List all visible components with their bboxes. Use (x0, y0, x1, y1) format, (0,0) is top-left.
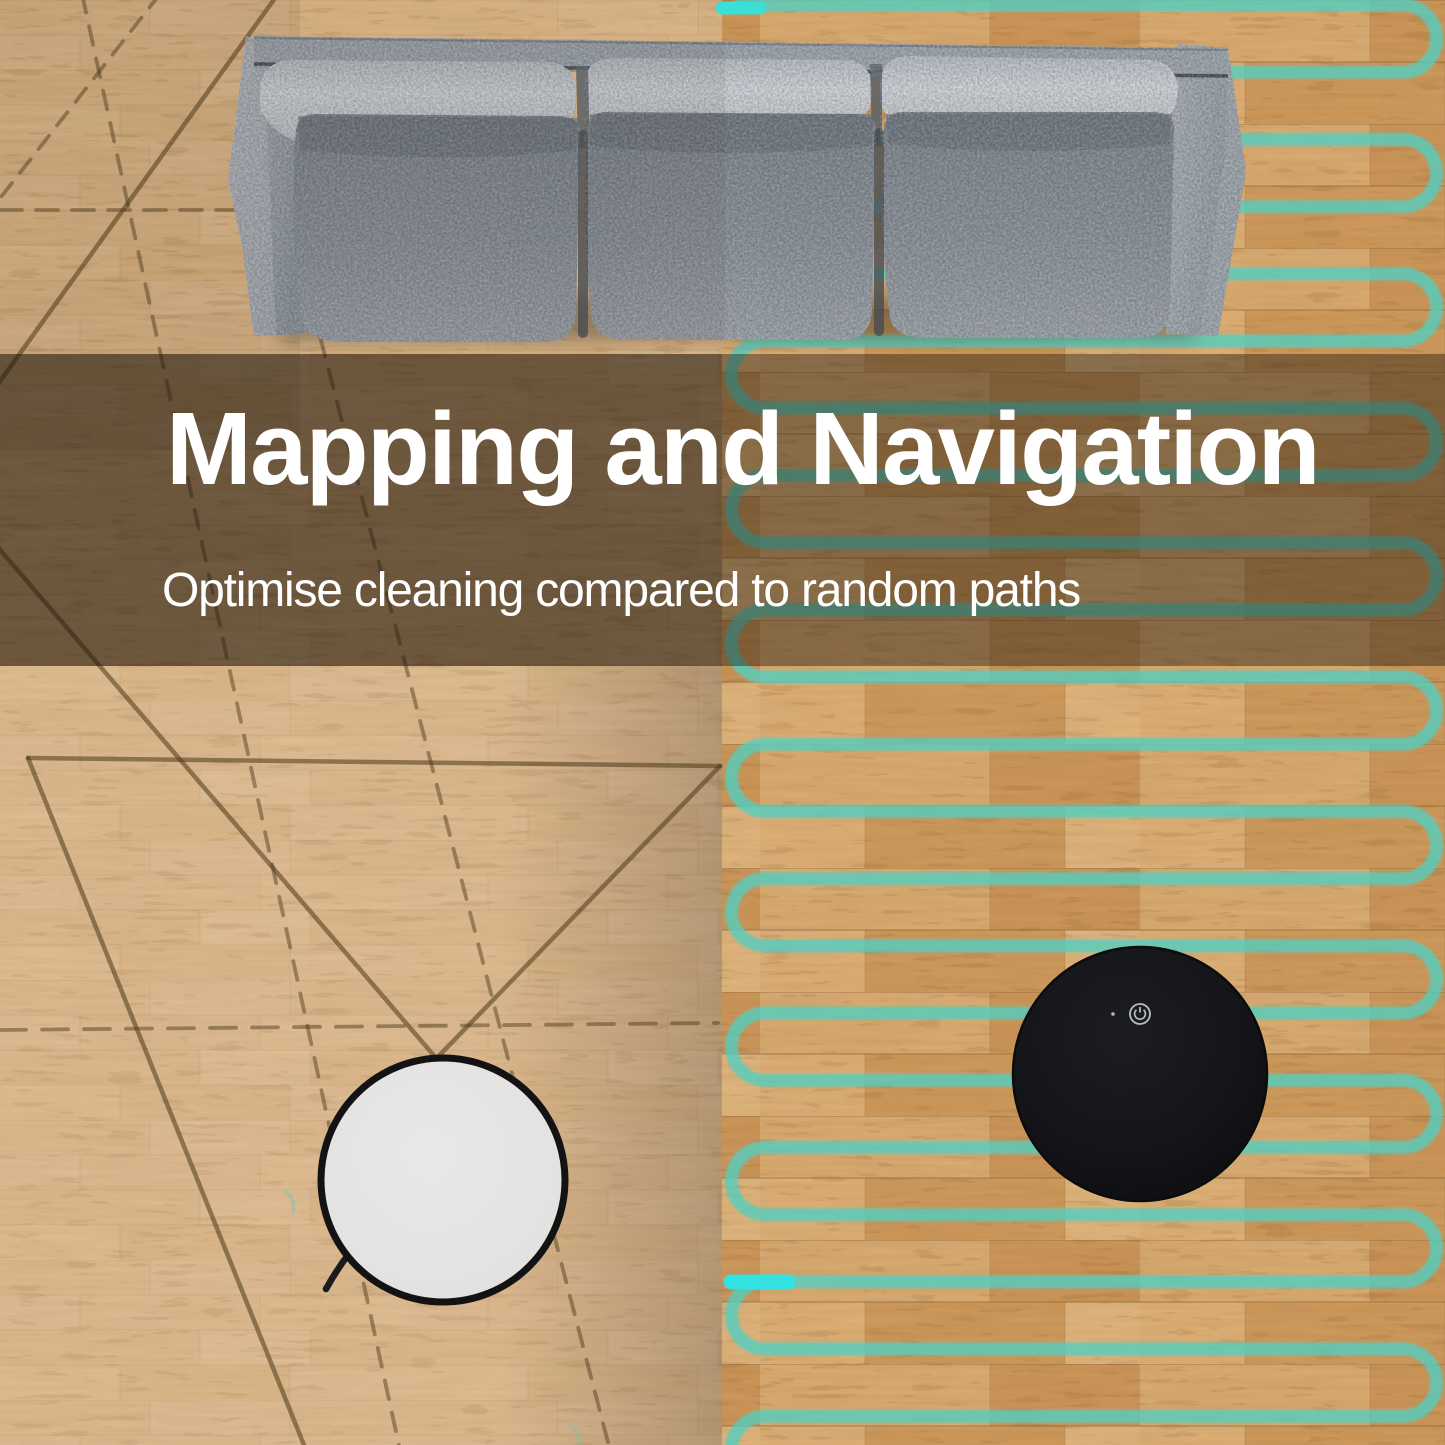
svg-text:Mapping and Navigation: Mapping and Navigation (166, 391, 1319, 506)
svg-text:Optimise cleaning compared to: Optimise cleaning compared to random pat… (162, 564, 1080, 617)
